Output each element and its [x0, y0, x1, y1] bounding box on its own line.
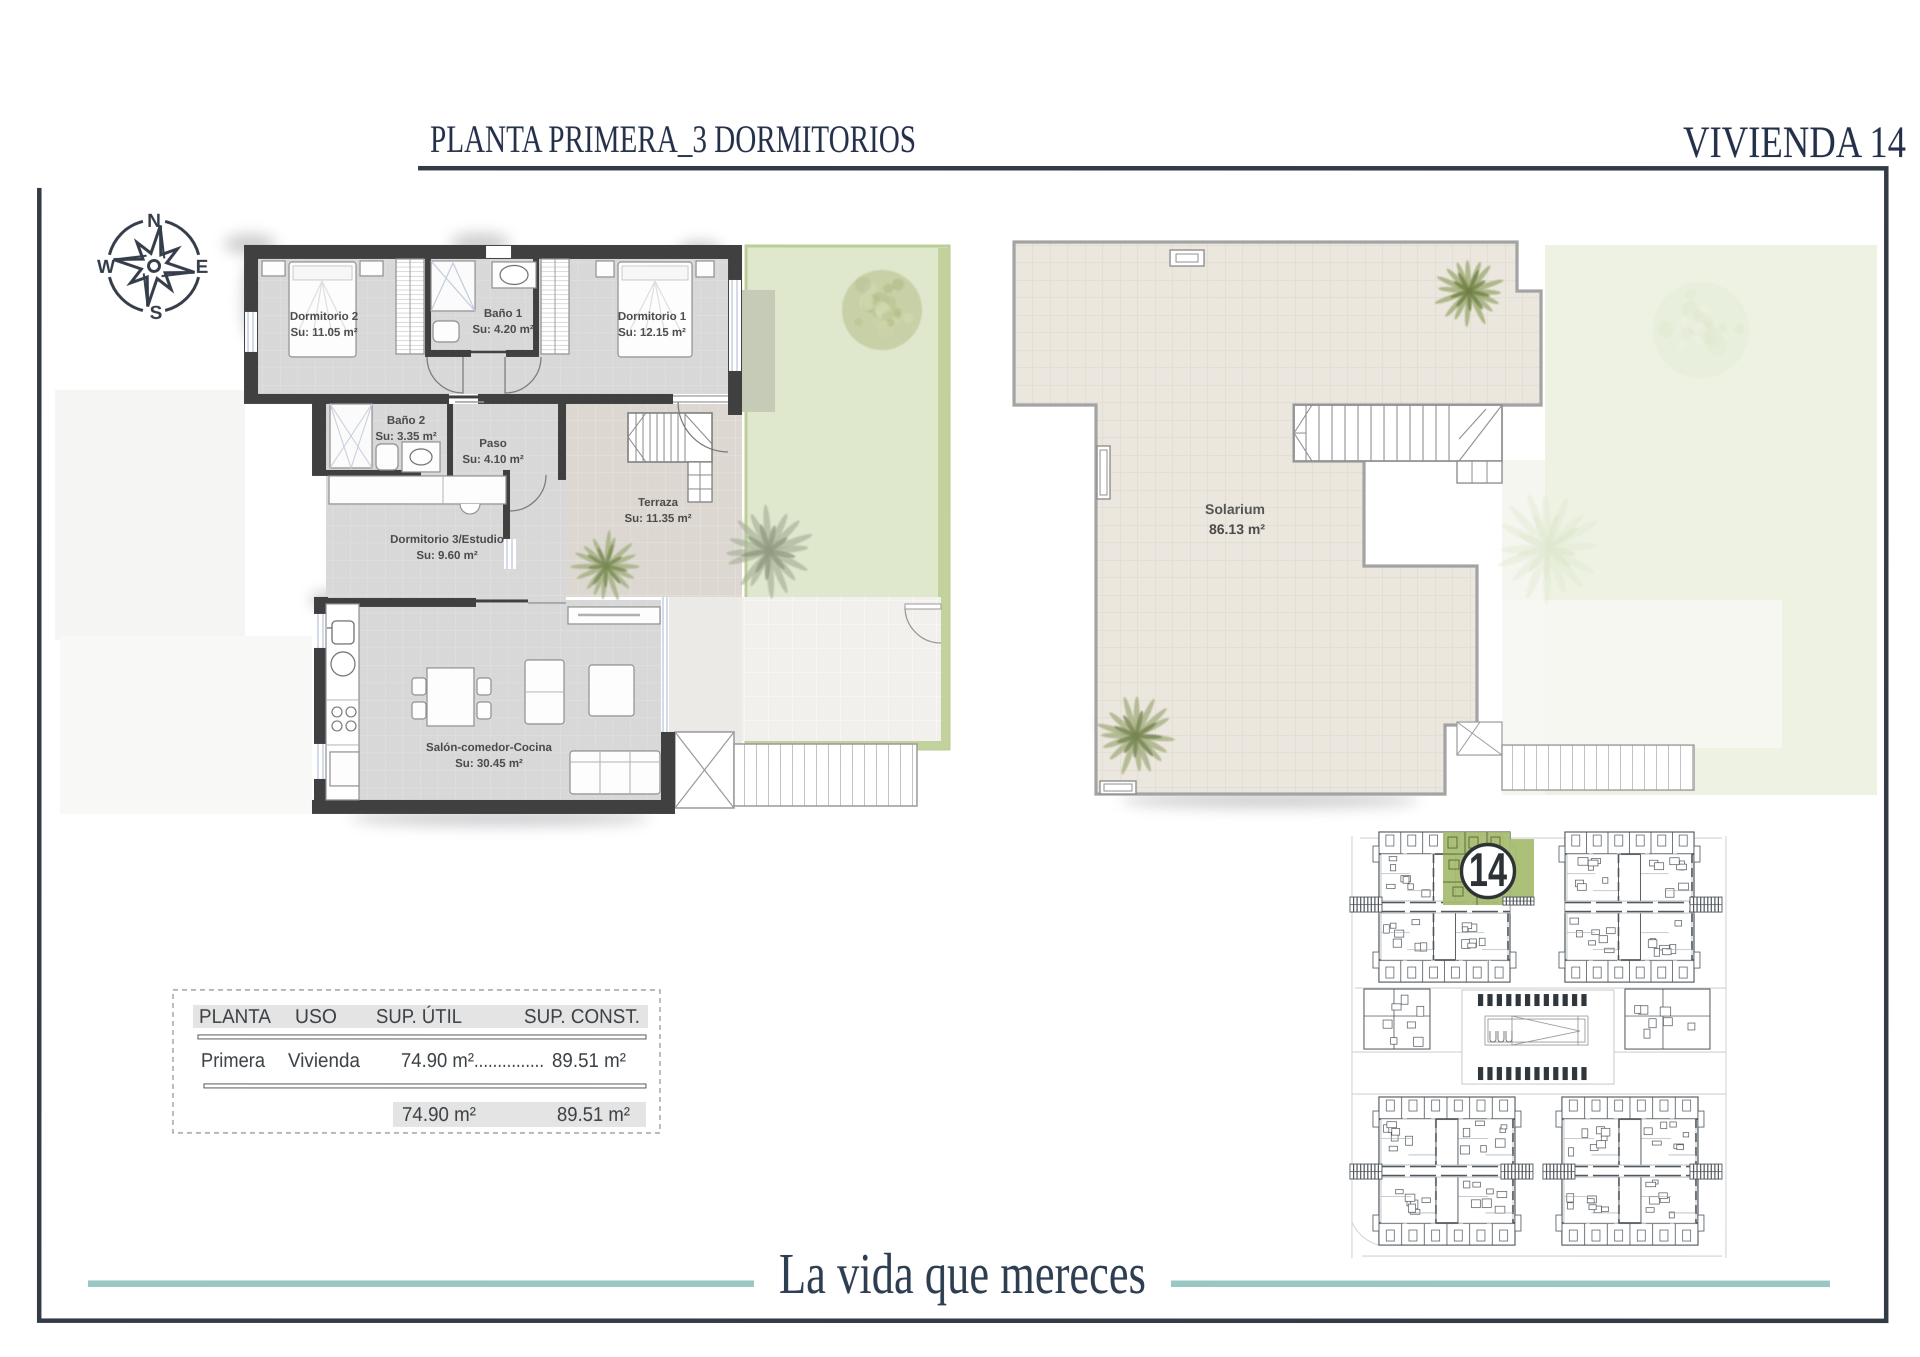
svg-text:Terraza: Terraza: [638, 497, 679, 509]
svg-text:Su: 4.20 m²: Su: 4.20 m²: [472, 324, 534, 336]
svg-text:N: N: [147, 211, 161, 232]
svg-text:74.90 m²: 74.90 m²: [402, 1104, 476, 1126]
svg-text:PLANTA: PLANTA: [199, 1006, 272, 1028]
svg-text:Baño 2: Baño 2: [387, 415, 425, 427]
svg-text:Solarium: Solarium: [1205, 501, 1265, 517]
svg-text:USO: USO: [295, 1006, 337, 1028]
svg-text:Su: 4.10 m²: Su: 4.10 m²: [462, 454, 524, 466]
svg-text:Baño 1: Baño 1: [484, 308, 523, 320]
svg-text:Su: 3.35 m²: Su: 3.35 m²: [375, 431, 437, 443]
svg-text:PLANTA PRIMERA_3 DORMITORIOS: PLANTA PRIMERA_3 DORMITORIOS: [430, 118, 916, 161]
svg-text:Su: 11.05 m²: Su: 11.05 m²: [290, 327, 357, 339]
svg-text:14: 14: [1469, 844, 1508, 897]
svg-text:S: S: [150, 303, 163, 324]
svg-text:SUP. ÚTIL: SUP. ÚTIL: [376, 1005, 462, 1028]
svg-text:E: E: [196, 257, 209, 278]
svg-text:Su: 30.45 m²: Su: 30.45 m²: [455, 758, 523, 770]
svg-text:Paso: Paso: [479, 438, 507, 450]
svg-text:Dormitorio 2: Dormitorio 2: [290, 311, 358, 323]
svg-text:Salón-comedor-Cocina: Salón-comedor-Cocina: [426, 742, 552, 754]
svg-text:Primera: Primera: [201, 1050, 266, 1072]
svg-text:89.51 m²: 89.51 m²: [552, 1050, 626, 1072]
svg-text:Dormitorio 3/Estudio: Dormitorio 3/Estudio: [390, 534, 504, 546]
svg-text:La vida que mereces: La vida que mereces: [779, 1241, 1146, 1306]
svg-text:Su: 11.35 m²: Su: 11.35 m²: [624, 513, 691, 525]
svg-text:Su: 9.60 m²: Su: 9.60 m²: [416, 550, 478, 562]
svg-text:Dormitorio 1: Dormitorio 1: [618, 311, 687, 323]
svg-text:89.51 m²: 89.51 m²: [557, 1104, 630, 1126]
svg-text:74.90 m²: 74.90 m²: [401, 1050, 474, 1072]
svg-text:...............: ...............: [474, 1050, 544, 1072]
svg-text:W: W: [97, 257, 115, 278]
svg-text:Su: 12.15 m²: Su: 12.15 m²: [618, 327, 686, 339]
svg-text:VIVIENDA 14: VIVIENDA 14: [1683, 117, 1906, 167]
svg-text:86.13 m²: 86.13 m²: [1209, 521, 1265, 537]
svg-text:SUP. CONST.: SUP. CONST.: [524, 1006, 640, 1028]
svg-text:Vivienda: Vivienda: [288, 1050, 361, 1072]
